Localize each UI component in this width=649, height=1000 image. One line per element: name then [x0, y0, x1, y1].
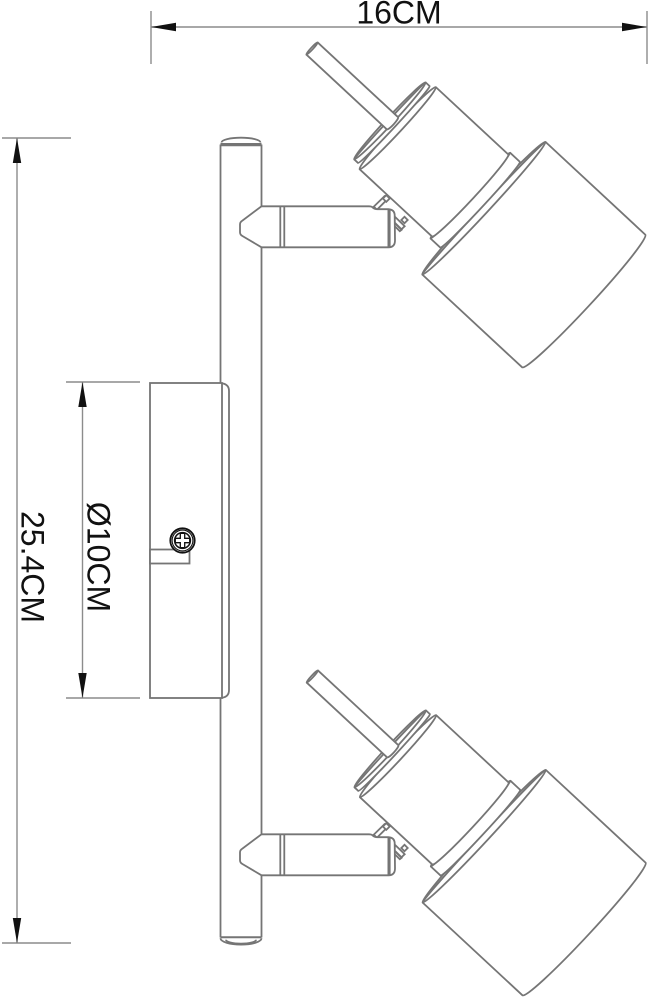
svg-text:16CM: 16CM: [356, 0, 441, 31]
svg-text:Ø10CM: Ø10CM: [81, 502, 117, 612]
svg-text:25.4CM: 25.4CM: [15, 511, 51, 623]
